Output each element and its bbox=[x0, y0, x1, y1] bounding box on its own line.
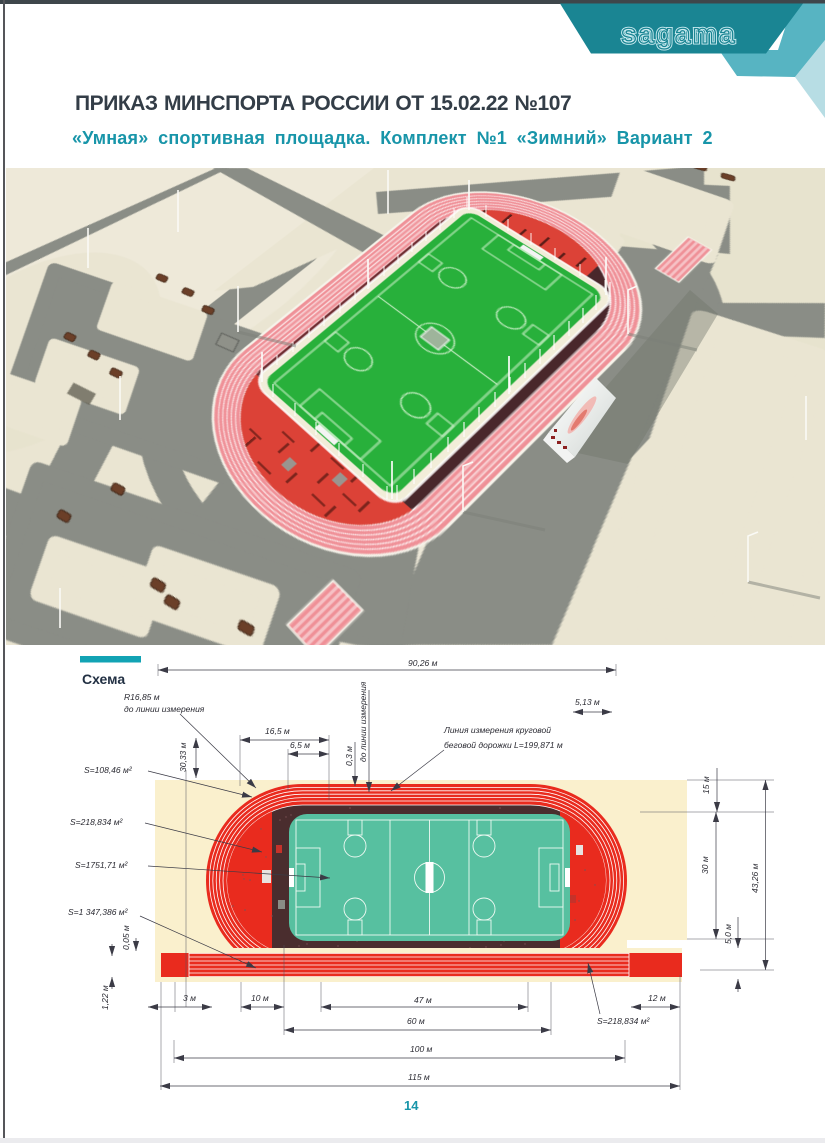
svg-text:S=218,834 м²: S=218,834 м² bbox=[597, 1016, 651, 1026]
svg-text:Схема: Схема bbox=[82, 671, 125, 687]
svg-text:sagama: sagama bbox=[621, 18, 737, 49]
svg-text:беговой дорожки L=199,871 м: беговой дорожки L=199,871 м bbox=[444, 740, 563, 750]
svg-text:0,3 м: 0,3 м bbox=[344, 746, 354, 766]
svg-text:S=1 347,386 м²: S=1 347,386 м² bbox=[68, 907, 129, 917]
svg-text:Линия измерения круговой: Линия измерения круговой bbox=[443, 725, 551, 735]
svg-text:S=108,46 м²: S=108,46 м² bbox=[84, 765, 133, 775]
svg-text:S=218,834 м²: S=218,834 м² bbox=[70, 817, 124, 827]
svg-text:100 м: 100 м bbox=[410, 1044, 433, 1054]
svg-text:47 м: 47 м bbox=[414, 995, 432, 1005]
svg-text:R16,85 м: R16,85 м bbox=[124, 692, 160, 702]
svg-text:S=1751,71 м²: S=1751,71 м² bbox=[75, 860, 129, 870]
svg-text:5,0 м: 5,0 м bbox=[723, 924, 733, 944]
svg-text:3 м: 3 м bbox=[183, 993, 196, 1003]
svg-text:10 м: 10 м bbox=[251, 993, 269, 1003]
svg-text:6,5 м: 6,5 м bbox=[290, 740, 310, 750]
svg-text:115 м: 115 м bbox=[408, 1072, 430, 1082]
svg-text:1,22 м: 1,22 м bbox=[100, 985, 110, 1010]
svg-text:0,05 м: 0,05 м bbox=[121, 925, 131, 950]
svg-text:5,13 м: 5,13 м bbox=[575, 697, 600, 707]
svg-text:90,26 м: 90,26 м bbox=[408, 658, 438, 668]
svg-text:15 м: 15 м bbox=[701, 776, 711, 794]
svg-text:43,26 м: 43,26 м bbox=[750, 863, 760, 893]
svg-text:до линии измерения: до линии измерения bbox=[358, 681, 368, 762]
svg-text:12 м: 12 м bbox=[648, 993, 666, 1003]
svg-text:16,5 м: 16,5 м bbox=[265, 726, 290, 736]
svg-text:60 м: 60 м bbox=[407, 1016, 425, 1026]
svg-text:30 м: 30 м bbox=[700, 856, 710, 874]
svg-text:до линии измерения: до линии измерения bbox=[124, 704, 205, 714]
svg-text:30,33 м: 30,33 м bbox=[178, 742, 188, 772]
